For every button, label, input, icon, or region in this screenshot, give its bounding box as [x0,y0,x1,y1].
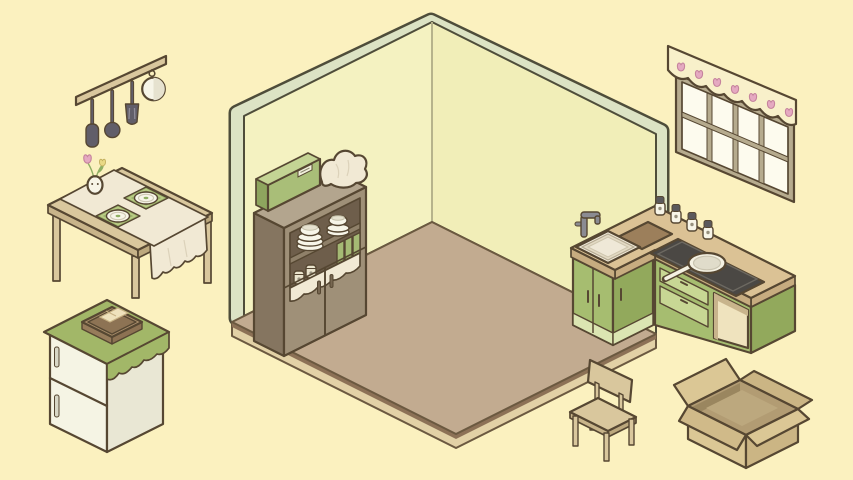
plate-stack-1 [297,224,323,250]
pink-tulip [84,155,92,163]
tulip-icon [731,86,738,94]
refrigerator[interactable] [44,300,169,452]
spice-jar [671,205,681,224]
tulip-icon [767,101,774,109]
scene-canvas [0,0,853,480]
faucet-spout [595,216,600,224]
spice-jar [655,197,665,216]
yellow-tulip [100,159,106,166]
tulip-icon [713,79,720,87]
tulip-icon [785,109,792,117]
tulip-icon [749,94,756,102]
vase-eye [91,183,93,185]
spice-jar [687,213,697,232]
table-leg [132,256,139,298]
vase-body [88,176,103,194]
spice-jar [703,221,713,240]
plate-stack-2 [327,216,349,237]
cupboard-side [254,213,284,356]
chair-leg [604,433,609,461]
table-leg [53,211,60,281]
hook-icon [131,78,133,80]
hook-icon [111,87,113,89]
chair-leg [629,419,634,445]
door-handle [330,275,333,288]
tulip-icon [695,71,702,79]
fridge-handle-lower [55,395,60,417]
chair-leg [573,416,578,446]
hook-icon [91,96,93,98]
door-handle [318,281,321,294]
game-stage: Cozy isometric kitchen room with furnitu… [0,0,853,480]
tulip-icon [677,63,684,71]
vase-eye [97,183,99,185]
fridge-handle-upper [55,347,60,367]
